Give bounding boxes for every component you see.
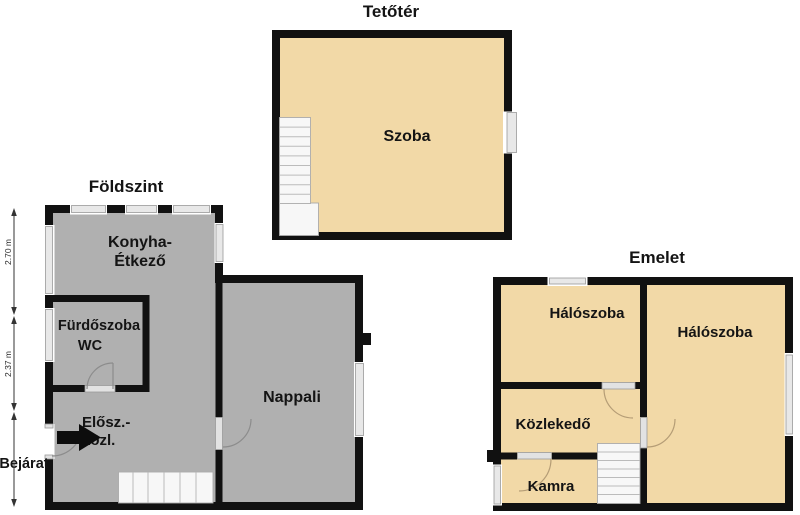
- ground-window-living-right: [354, 362, 365, 437]
- ground-floor: [49, 209, 359, 506]
- floorplan-page: Tetőtér Szoba Földszint: [0, 0, 800, 515]
- ground-staircase: [119, 472, 214, 503]
- wall-pillar-bump: [487, 450, 497, 462]
- upper-plan: Emelet: [487, 248, 794, 507]
- ground-title: Földszint: [89, 177, 164, 196]
- dimension-label-1: 2.70 m: [3, 239, 13, 265]
- living-label: Nappali: [263, 389, 321, 406]
- hall-label-line1: Elősz.-: [82, 414, 130, 431]
- kitchen-label-line2: Étkező: [114, 251, 166, 270]
- ground-window-top-2: [125, 204, 158, 215]
- pantry-label: Kamra: [528, 478, 575, 495]
- floorplan-canvas: Tetőtér Szoba Földszint: [0, 0, 800, 515]
- kitchen-label-line1: Konyha-: [108, 234, 172, 251]
- chimney-bump: [359, 333, 371, 345]
- upper-window-left: [493, 465, 503, 506]
- upper-title: Emelet: [629, 248, 685, 267]
- bathroom-label-line1: Fürdőszoba: [58, 318, 141, 334]
- attic-title: Tetőtér: [363, 2, 420, 21]
- ground-window-left-1: [44, 225, 55, 295]
- upper-window-right: [785, 353, 795, 436]
- bedroom1-label: Hálószoba: [549, 305, 625, 322]
- ground-window-kitchen-right: [215, 223, 225, 263]
- entrance-label: Bejárat: [0, 456, 49, 472]
- bathroom-label-line2: WC: [78, 338, 103, 354]
- corridor-label: Közlekedő: [515, 416, 590, 433]
- ground-window-left-2: [44, 308, 55, 362]
- ground-window-top-1: [70, 204, 107, 215]
- bedroom2-label: Hálószoba: [677, 324, 753, 341]
- attic-plan: Tetőtér Szoba: [276, 2, 517, 236]
- upper-staircase: [598, 444, 641, 504]
- attic-room-label: Szoba: [383, 128, 430, 145]
- upper-window-top: [548, 277, 588, 287]
- dimension-label-2: 2.37 m: [3, 351, 13, 377]
- ground-window-top-3: [172, 204, 211, 215]
- attic-window: [503, 112, 517, 154]
